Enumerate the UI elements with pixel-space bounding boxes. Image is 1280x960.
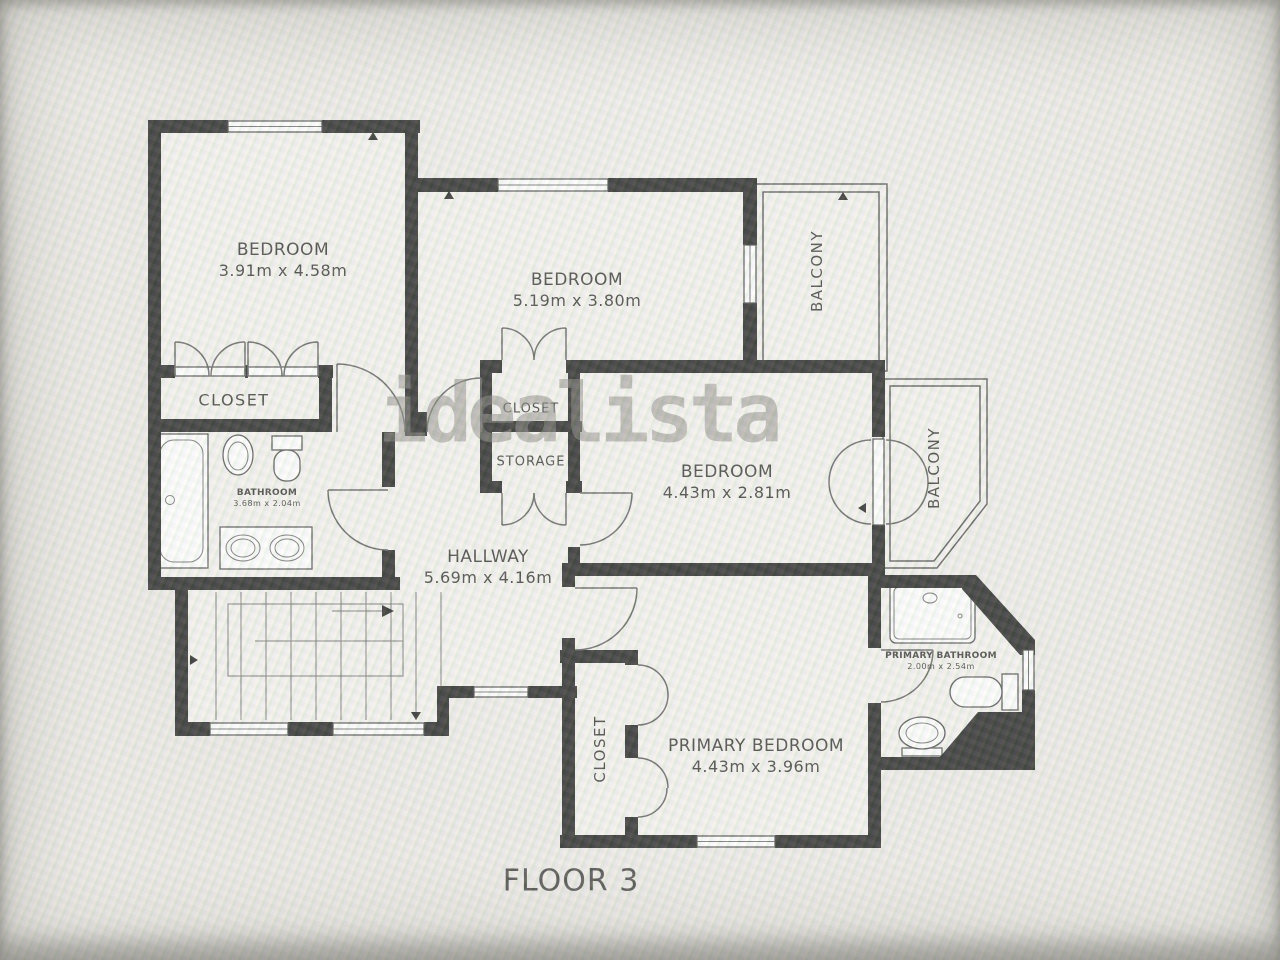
room-label-storage: STORAGE <box>497 455 566 470</box>
toilet <box>223 435 253 475</box>
room-dims: 4.43m x 2.81m <box>663 483 792 502</box>
primary-bidet <box>899 717 945 756</box>
room-name: BEDROOM <box>663 462 792 482</box>
room-dims: 3.91m x 4.58m <box>219 261 348 280</box>
room-dims: 5.69m x 4.16m <box>424 568 553 587</box>
room-label-balcony-right: BALCONY <box>925 427 943 509</box>
floorplan-drawing <box>0 0 1280 960</box>
floorplan-photo: BEDROOM 3.91m x 4.58m BEDROOM 5.19m x 3.… <box>0 0 1280 960</box>
bidet <box>272 436 302 481</box>
room-dims: 3.68m x 2.04m <box>233 499 301 508</box>
room-label-primary-bedroom: PRIMARY BEDROOM 4.43m x 3.96m <box>668 736 844 776</box>
room-name: BATHROOM <box>233 488 301 498</box>
room-name: PRIMARY BATHROOM <box>885 651 997 661</box>
bathtub <box>155 434 208 568</box>
room-dims: 2.00m x 2.54m <box>885 662 997 671</box>
room-label-bathroom: BATHROOM 3.68m x 2.04m <box>233 488 301 508</box>
room-label-bedroom2: BEDROOM 5.19m x 3.80m <box>513 270 642 310</box>
room-name: PRIMARY BEDROOM <box>668 736 844 756</box>
room-name: CLOSET <box>591 715 609 782</box>
shower-tray <box>890 583 975 643</box>
double-sink-vanity <box>220 527 312 569</box>
room-name: BEDROOM <box>219 240 348 260</box>
room-label-closet-hall: CLOSET <box>503 402 560 417</box>
room-name: STORAGE <box>497 455 566 470</box>
room-label-closet-primary: CLOSET <box>591 715 609 782</box>
balcony-door-slab <box>873 439 884 525</box>
room-dims: 4.43m x 3.96m <box>668 757 844 776</box>
room-name: HALLWAY <box>424 547 553 567</box>
room-label-closet-bedroom1: CLOSET <box>198 391 269 410</box>
room-dims: 5.19m x 3.80m <box>513 291 642 310</box>
primary-toilet <box>950 674 1018 710</box>
room-name: BALCONY <box>925 427 943 509</box>
room-name: BEDROOM <box>513 270 642 290</box>
room-name: BALCONY <box>808 230 826 312</box>
room-label-balcony-top: BALCONY <box>808 230 826 312</box>
room-label-primary-bathroom: PRIMARY BATHROOM 2.00m x 2.54m <box>885 651 997 671</box>
room-label-bedroom3: BEDROOM 4.43m x 2.81m <box>663 462 792 502</box>
floor-title: FLOOR 3 <box>503 864 640 899</box>
room-name: CLOSET <box>198 391 269 410</box>
room-label-hallway: HALLWAY 5.69m x 4.16m <box>424 547 553 587</box>
room-label-bedroom1: BEDROOM 3.91m x 4.58m <box>219 240 348 280</box>
room-name: CLOSET <box>503 402 560 417</box>
